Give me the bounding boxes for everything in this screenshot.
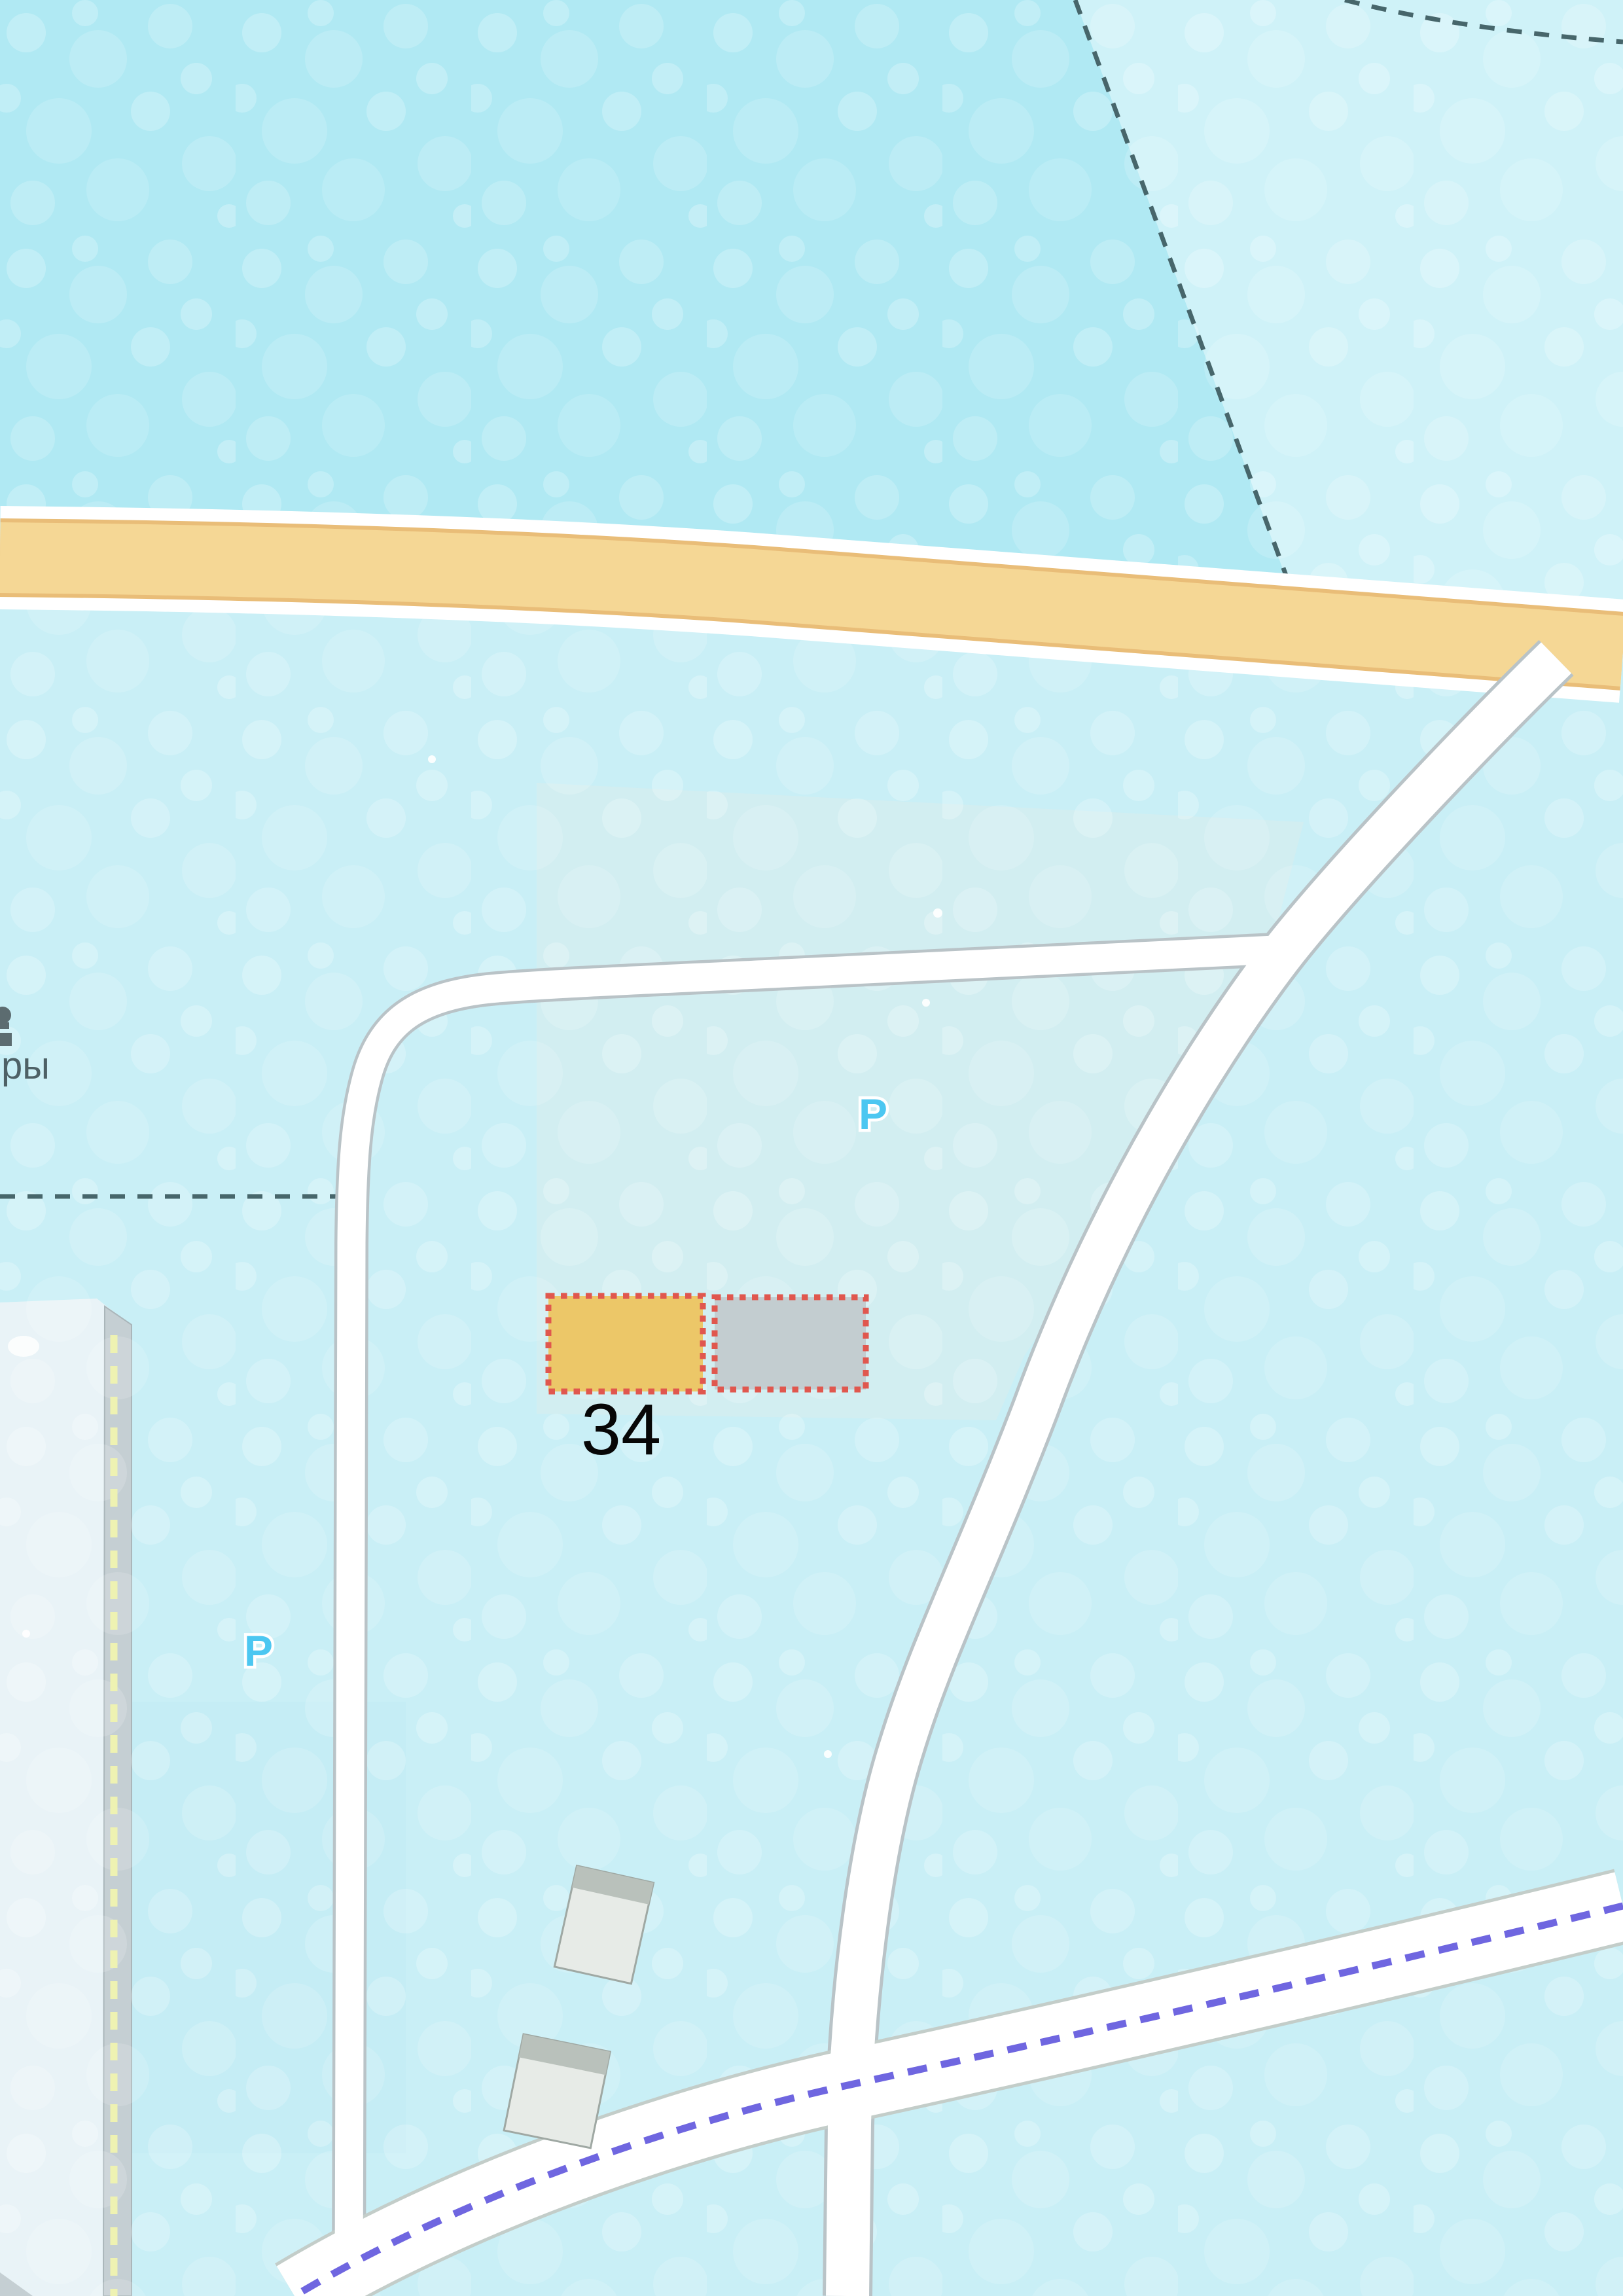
building-2: [504, 2034, 610, 2148]
parking-icon-2: P: [244, 1626, 273, 1675]
parking-icon: P: [859, 1090, 887, 1138]
street-name-fragment: ры: [1, 1045, 50, 1087]
highlighted-parcel-yellow[interactable]: [548, 1296, 703, 1391]
parcel-number-label: 34: [581, 1390, 661, 1470]
highlighted-parcel-gray[interactable]: [715, 1297, 866, 1390]
map-viewport[interactable]: 34 P P ры: [0, 0, 1623, 2296]
map-canvas[interactable]: 34 P P ры: [0, 0, 1623, 2296]
